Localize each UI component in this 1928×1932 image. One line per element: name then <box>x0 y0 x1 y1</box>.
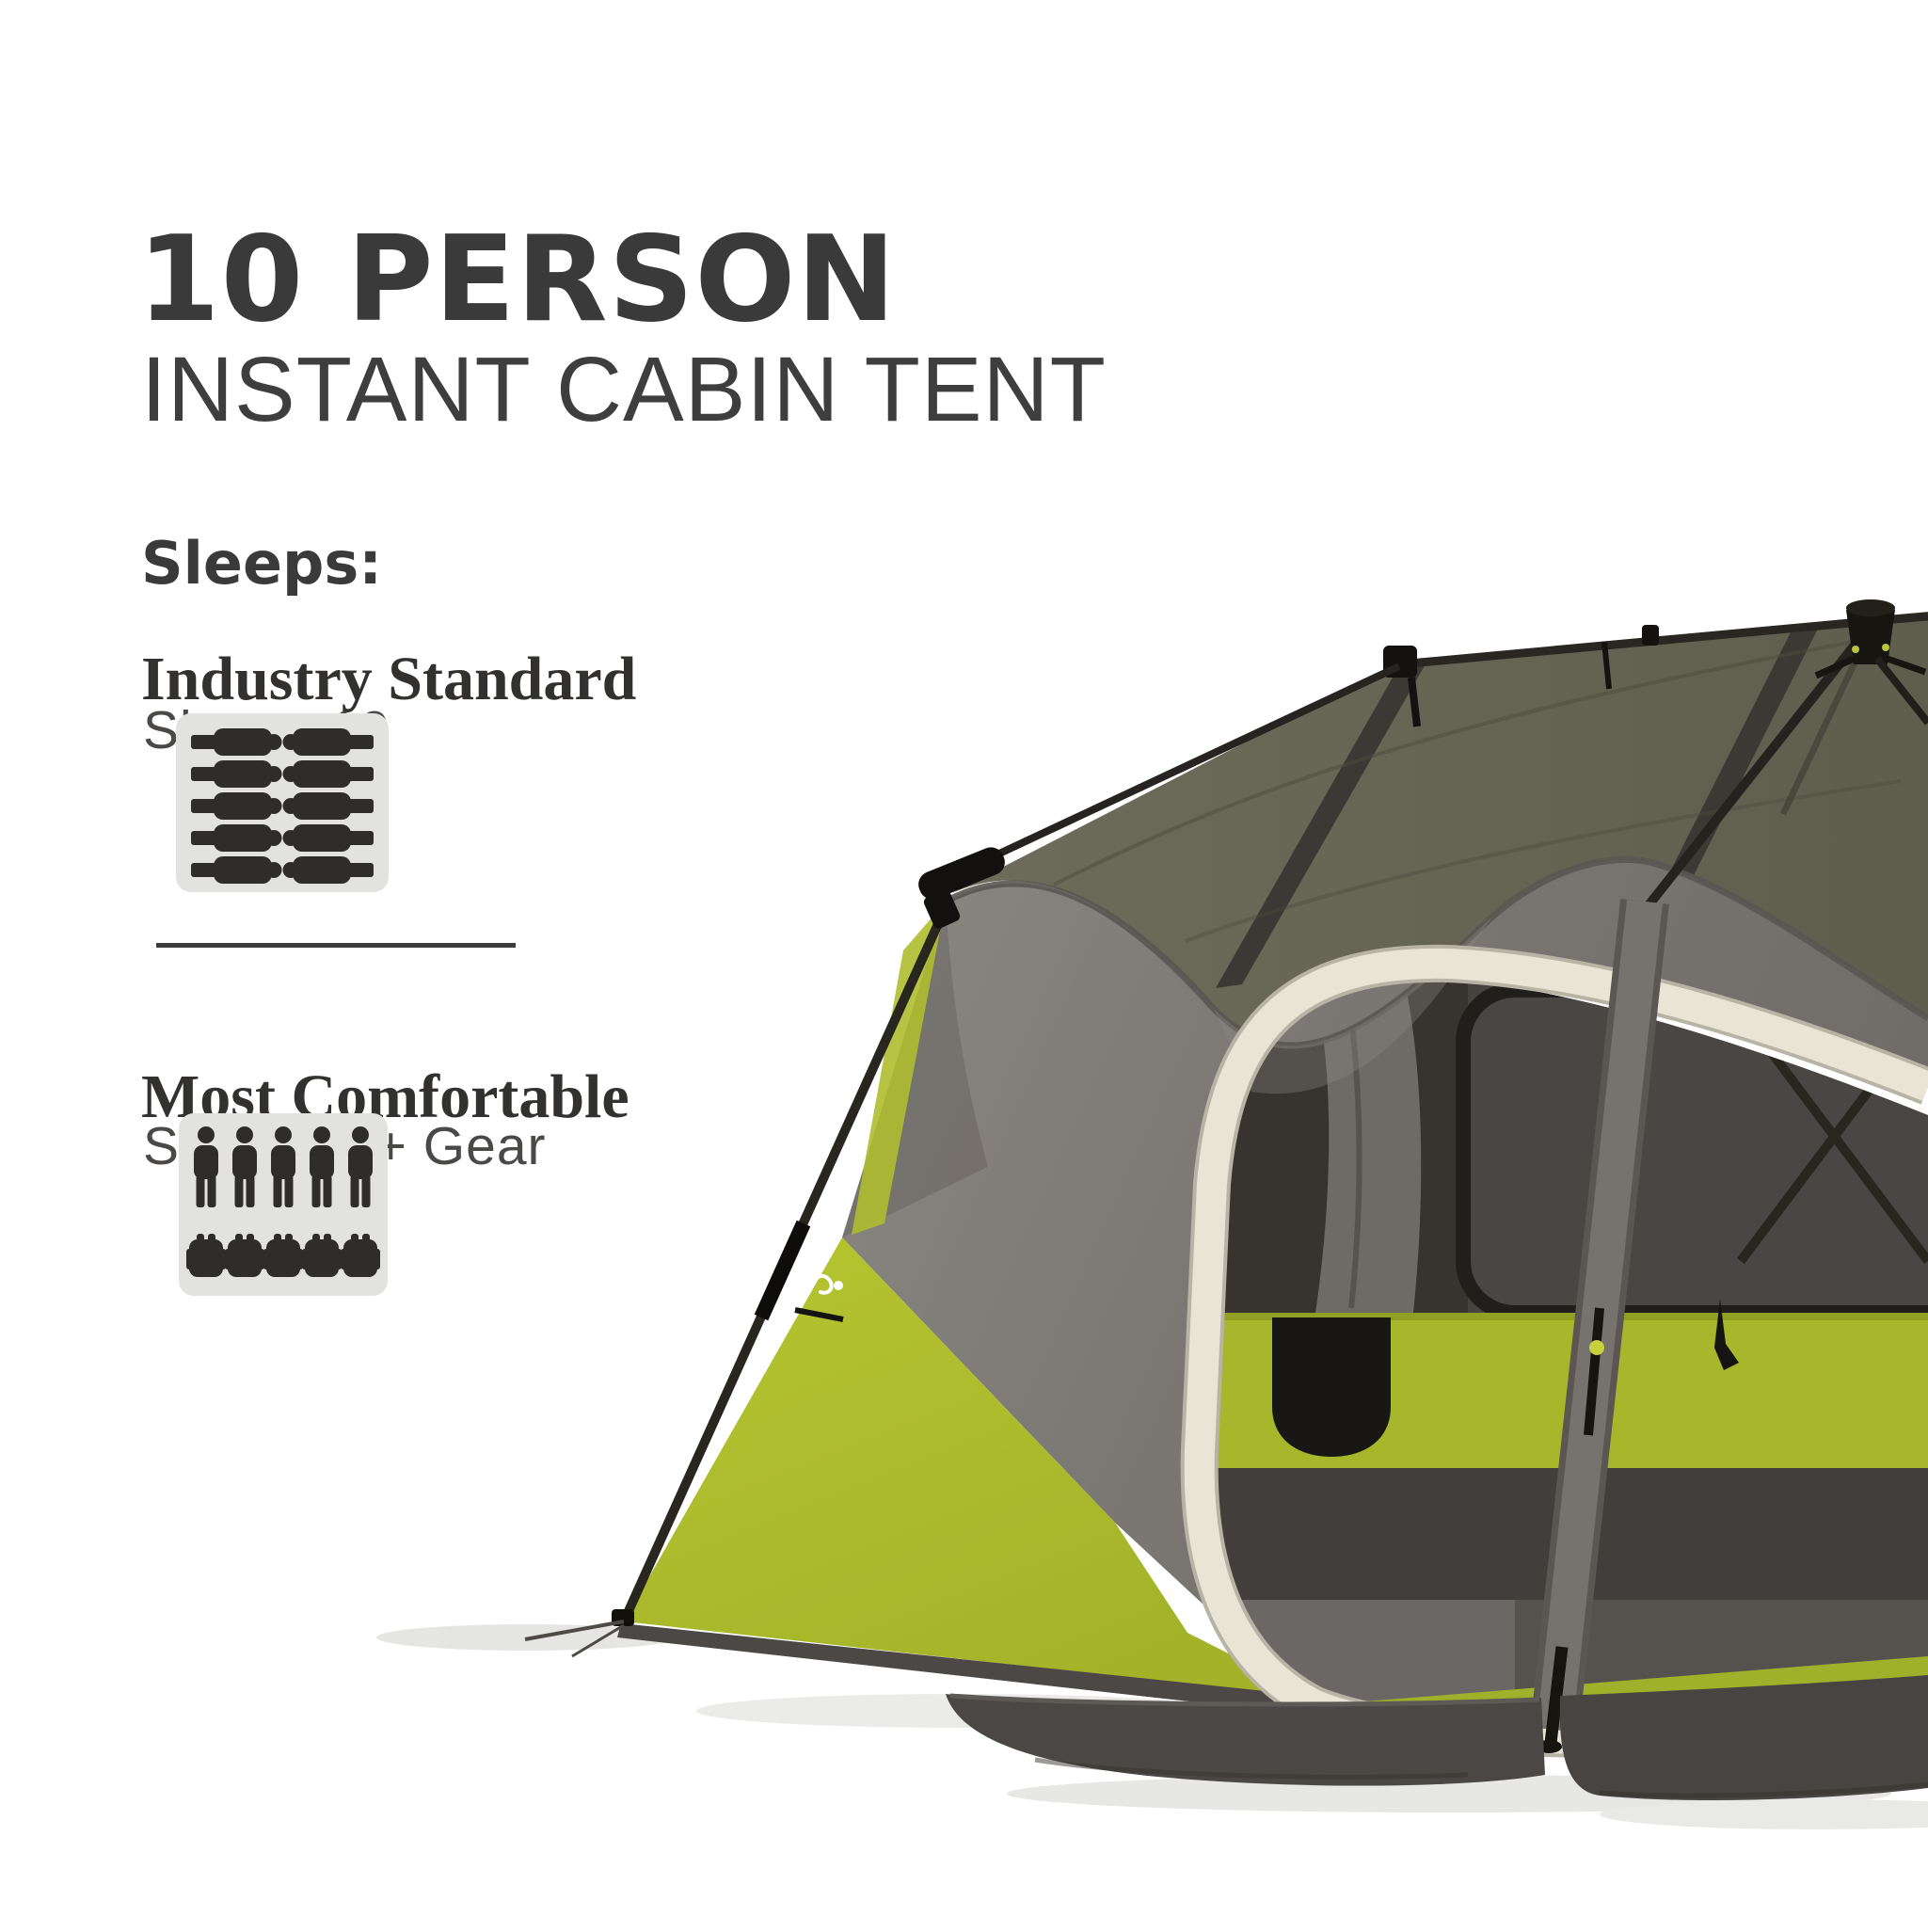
people-5-plus-gear-icon <box>179 1113 388 1296</box>
gear-pouch <box>1272 1317 1391 1457</box>
sleeping-bags-10-icon <box>176 713 389 892</box>
section-divider <box>156 943 516 948</box>
page-title: 10 PERSON <box>137 220 897 339</box>
infographic-canvas: 10 PERSON INSTANT CABIN TENT Sleeps: Ind… <box>0 0 1928 1927</box>
sleeps-heading: Sleeps: <box>141 529 382 598</box>
page-subtitle: INSTANT CABIN TENT <box>141 343 1107 435</box>
